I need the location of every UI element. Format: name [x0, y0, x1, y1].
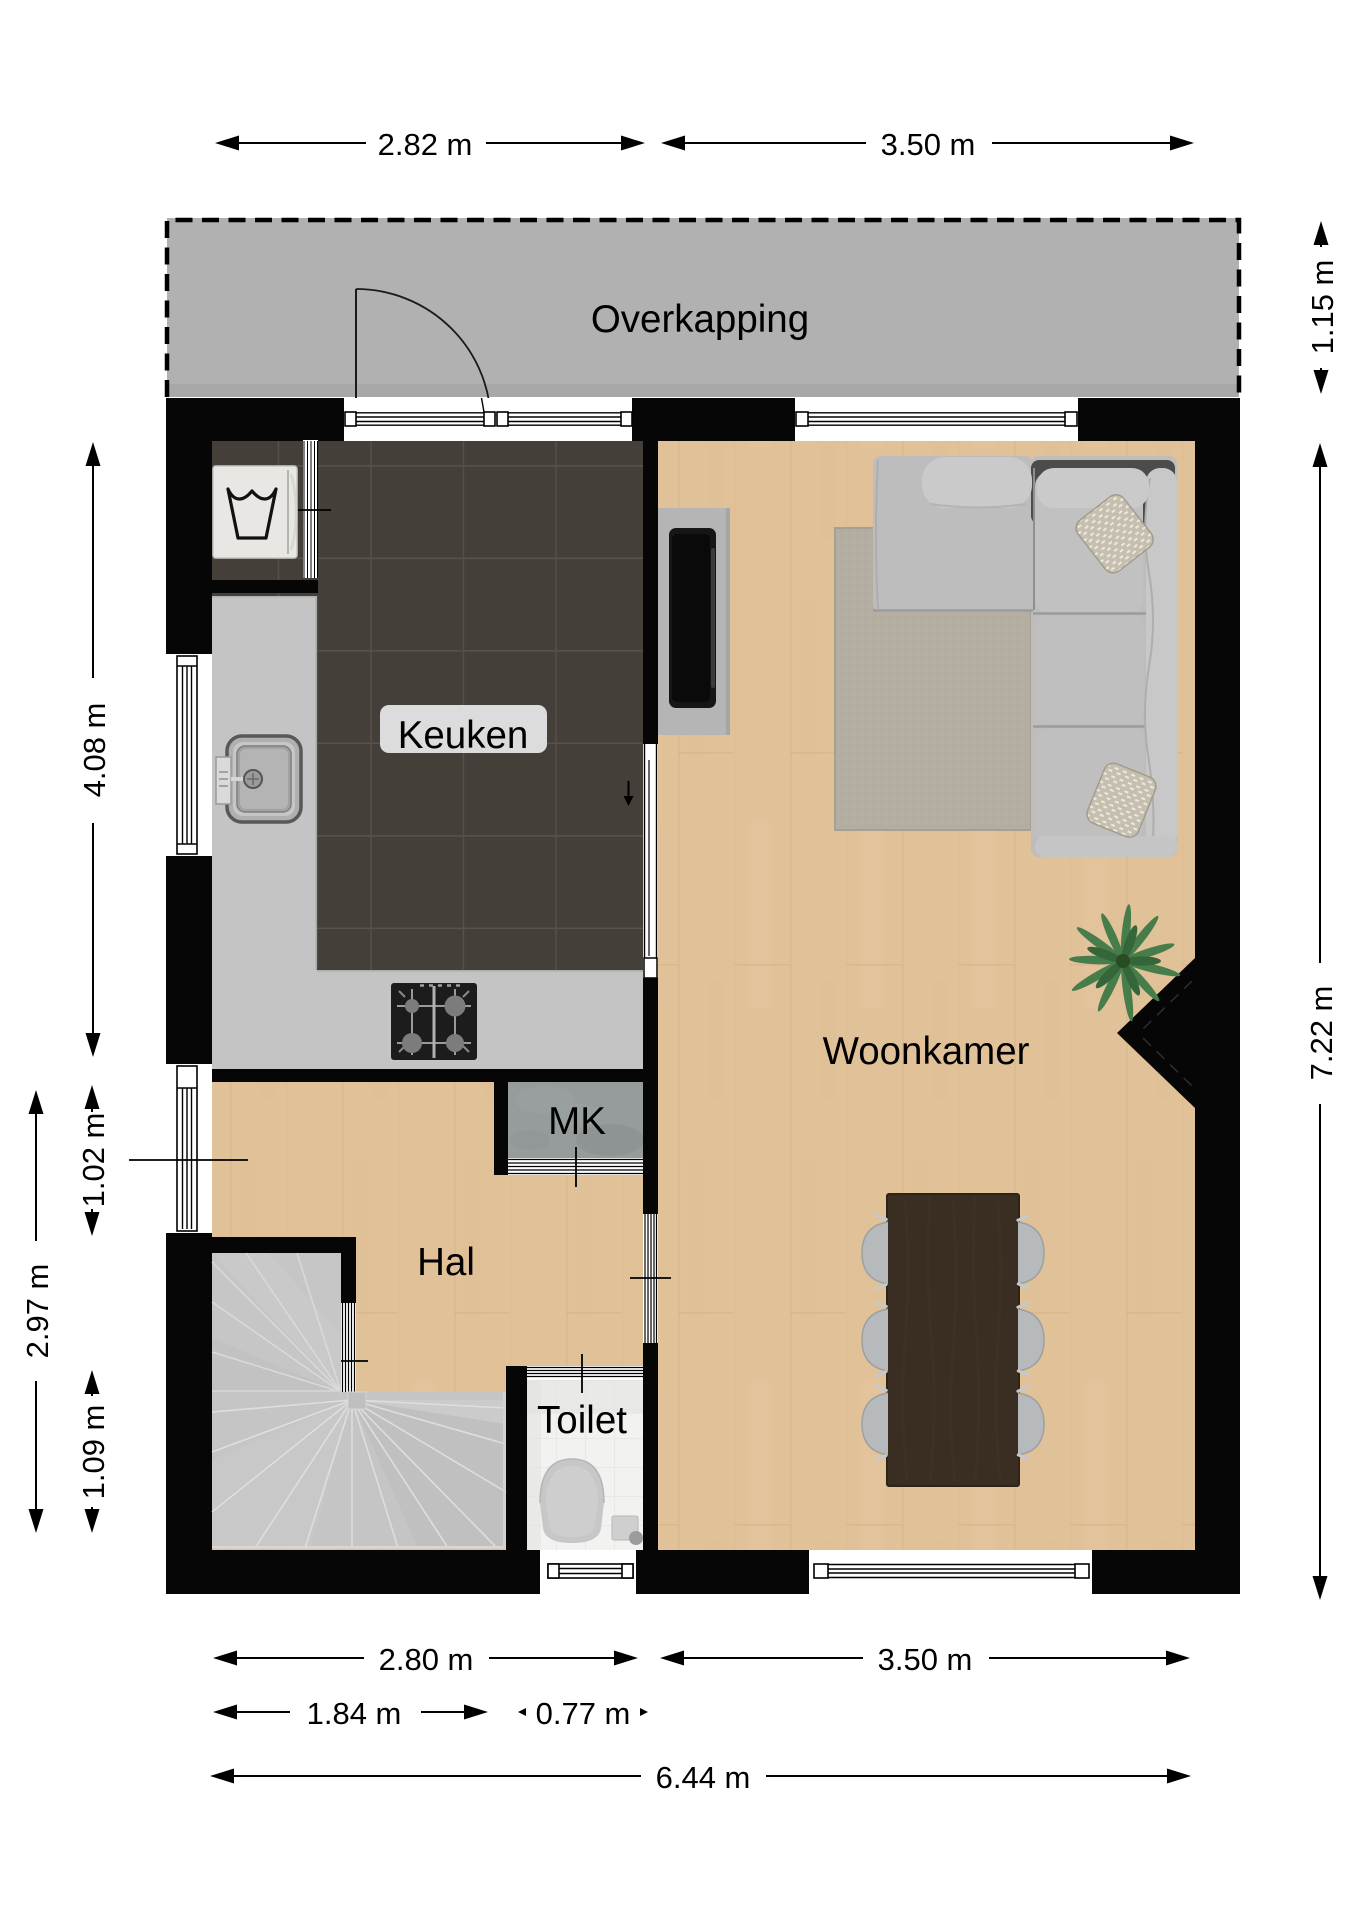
svg-text:1.02 m: 1.02 m	[76, 1113, 111, 1208]
svg-text:6.44 m: 6.44 m	[656, 1760, 751, 1795]
svg-text:1.84 m: 1.84 m	[307, 1696, 402, 1731]
svg-text:Hal: Hal	[417, 1241, 475, 1284]
svg-text:Overkapping: Overkapping	[591, 298, 809, 341]
svg-text:3.50 m: 3.50 m	[881, 127, 976, 162]
svg-text:7.22 m: 7.22 m	[1304, 986, 1339, 1081]
svg-text:1.15 m: 1.15 m	[1305, 260, 1340, 355]
svg-text:2.97 m: 2.97 m	[20, 1264, 55, 1359]
svg-text:Toilet: Toilet	[537, 1399, 627, 1442]
svg-text:MK: MK	[548, 1100, 606, 1143]
svg-text:4.08 m: 4.08 m	[77, 703, 112, 798]
svg-text:2.80 m: 2.80 m	[379, 1642, 474, 1677]
svg-text:0.77 m: 0.77 m	[536, 1696, 631, 1731]
svg-text:Woonkamer: Woonkamer	[823, 1030, 1030, 1073]
svg-text:3.50 m: 3.50 m	[878, 1642, 973, 1677]
svg-text:2.82 m: 2.82 m	[378, 127, 473, 162]
svg-text:1.09 m: 1.09 m	[76, 1405, 111, 1500]
svg-text:Keuken: Keuken	[398, 714, 529, 757]
